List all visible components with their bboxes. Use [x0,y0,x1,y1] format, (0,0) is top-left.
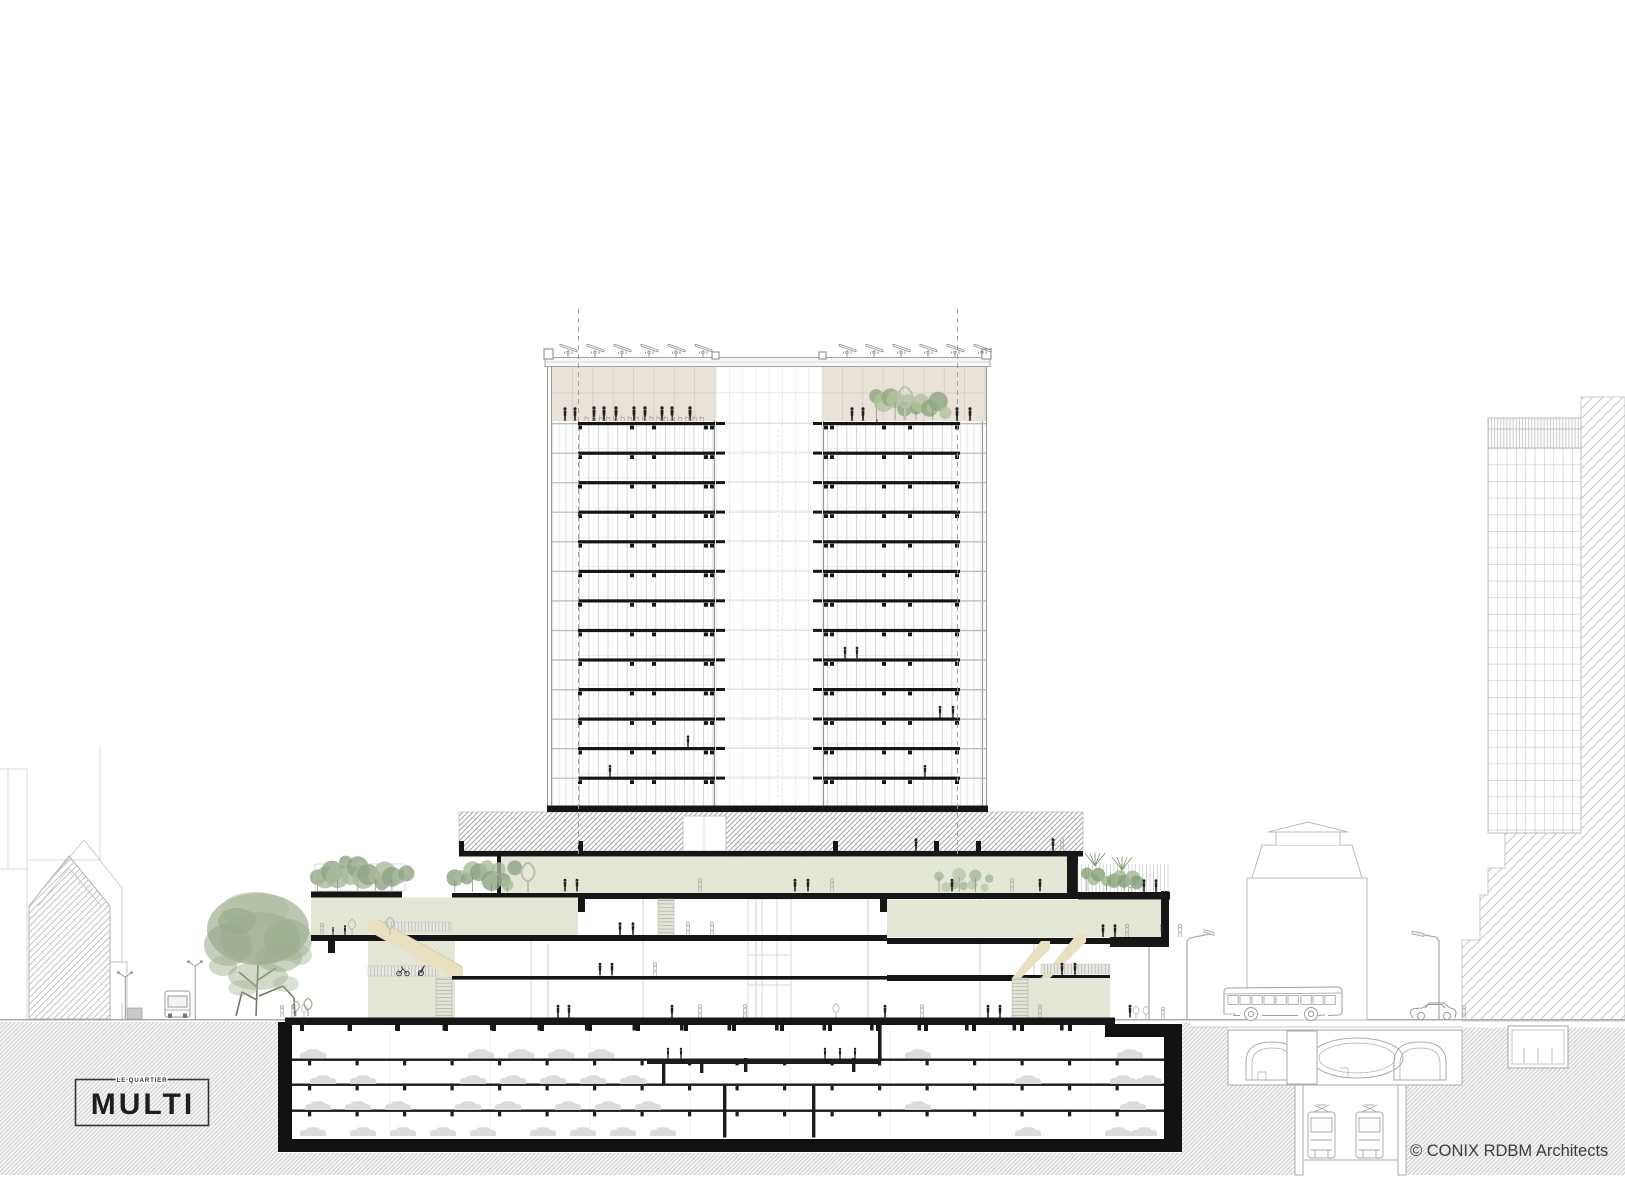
svg-text:MULTI: MULTI [91,1088,195,1121]
svg-text:LE QUARTIER: LE QUARTIER [117,1077,168,1084]
svg-text:© CONIX RDBM Architects: © CONIX RDBM Architects [1410,1142,1608,1160]
